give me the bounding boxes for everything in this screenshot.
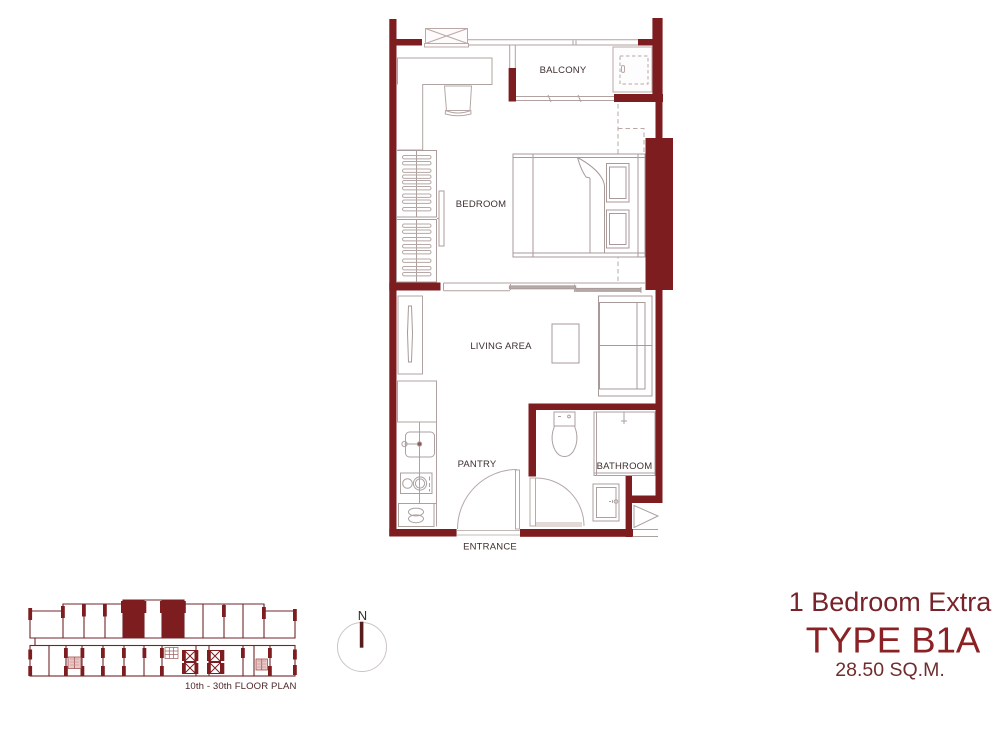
svg-text:N: N xyxy=(358,608,367,623)
svg-text:1 Bedroom Extra: 1 Bedroom Extra xyxy=(789,587,993,617)
svg-text:BATHROOM: BATHROOM xyxy=(597,461,653,472)
svg-text:TYPE B1A: TYPE B1A xyxy=(806,620,981,661)
svg-text:10th - 30th FLOOR PLAN: 10th - 30th FLOOR PLAN xyxy=(185,681,297,692)
svg-text:28.50 SQ.M.: 28.50 SQ.M. xyxy=(835,659,944,681)
svg-text:LIVING AREA: LIVING AREA xyxy=(470,341,532,352)
svg-text:BALCONY: BALCONY xyxy=(540,65,587,76)
svg-text:BEDROOM: BEDROOM xyxy=(456,199,507,210)
svg-text:PANTRY: PANTRY xyxy=(458,459,497,470)
svg-text:ENTRANCE: ENTRANCE xyxy=(463,542,517,553)
